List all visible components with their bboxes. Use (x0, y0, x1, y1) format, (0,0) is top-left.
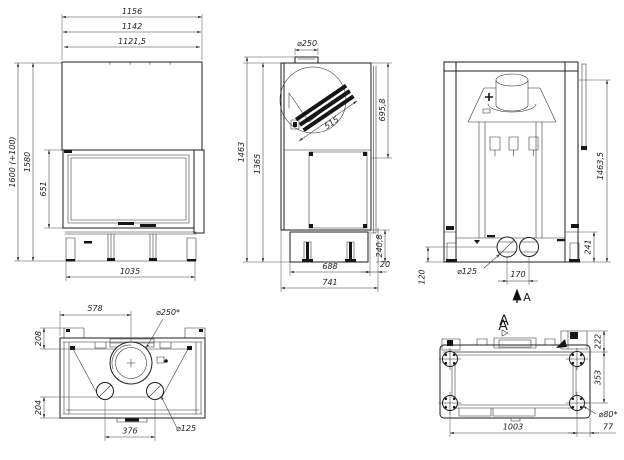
dim-side-base-height: 240,8 (375, 235, 384, 258)
side-panel (309, 152, 367, 228)
flue-opening (110, 342, 152, 384)
dim-side-base-depth: 688 (322, 262, 337, 271)
dim-side-hood-height: 695,8 (378, 99, 387, 122)
dim-front-base-width: 1035 (120, 267, 140, 276)
bottom-view-outline (440, 345, 590, 418)
front-detail-marks (64, 150, 196, 262)
adjustable-foot-bottom-left (439, 392, 461, 414)
dim-plan-flue-offset: 578 (87, 304, 102, 313)
front-base-structure (65, 232, 196, 261)
sensor-dot (164, 359, 168, 363)
flue-diameter-leader (146, 319, 163, 348)
dim-plan-intake-spacing: 376 (122, 427, 137, 436)
outlet-diameter-leader (484, 254, 500, 268)
front-view: 1156 1142 1121,5 1600 (+100) 1580 651 10… (8, 7, 204, 281)
adjustable-foot-top-left (439, 348, 461, 370)
front-door-frame (68, 62, 189, 223)
side-panel-corner-marks (309, 152, 367, 228)
plan-view: 578 ⌀250* 208 204 376 ⌀125 (34, 304, 205, 441)
dim-bottom-feet-spacing: 1003 (503, 423, 523, 432)
intake-diameter-leader (161, 396, 177, 428)
dim-bottom-feet-depth: 353 (594, 370, 603, 385)
dim-plan-intake-diameter: ⌀125 (176, 424, 196, 433)
dim-plan-front-depth: 204 (34, 400, 43, 415)
air-outlet-right (520, 238, 539, 257)
dim-rear-base-height: 241 (584, 239, 593, 254)
technical-drawing-sheet: 1156 1142 1121,5 1600 (+100) 1580 651 10… (0, 0, 624, 460)
dim-front-body-height: 1580 (23, 152, 32, 172)
dim-bottom-rear-offset: 222 (594, 334, 603, 349)
dim-bottom-foot-diameter: ⌀80* (599, 410, 618, 419)
rear-convector-channels (457, 122, 565, 238)
side-view-outline (281, 57, 371, 262)
bolt-cross-mark (485, 93, 493, 101)
dim-side-flue-diameter: ⌀250 (297, 39, 317, 48)
dim-plan-rear-depth: 208 (34, 331, 43, 346)
side-base-feet (302, 242, 356, 262)
rear-detail-marks (446, 146, 587, 244)
flue-collar-top (496, 74, 528, 86)
dim-front-overall-height: 1600 (+100) (8, 136, 17, 187)
rear-view: 1463,5 241 120 ⌀125 170 A A (418, 62, 612, 329)
bottom-view: A 222 353 ⌀80* 1003 77 (439, 318, 618, 437)
fireplace-drawing: 1156 1142 1121,5 1600 (+100) 1580 651 10… (0, 0, 624, 460)
front-view-outline (62, 62, 204, 233)
bottom-view-label: A (498, 318, 508, 334)
outlet-circle-right (520, 238, 539, 257)
side-extension-lines (243, 48, 392, 292)
rear-feet-pads (446, 259, 580, 262)
dim-side-body-height: 1365 (253, 154, 262, 174)
bottom-extension-lines (450, 331, 616, 437)
bottom-inner-frame (452, 352, 576, 421)
side-view: ⌀250 515 695,8 1463 1365 240,8 688 20 74… (237, 39, 392, 292)
dim-front-door-height: 651 (39, 181, 48, 196)
flue-collar (488, 74, 536, 112)
dim-front-overall-width: 1156 (122, 7, 142, 16)
plan-sensor (157, 357, 164, 363)
dim-rear-outlet-height: 120 (418, 269, 427, 284)
dim-plan-flue-diameter: ⌀250* (156, 308, 180, 317)
dim-rear-outlet-spacing: 170 (510, 270, 525, 279)
dim-front-inner-width: 1121,5 (118, 37, 146, 46)
dim-side-overall-depth: 741 (322, 278, 337, 287)
dim-rear-overall-height: 1463,5 (596, 152, 605, 180)
dim-bottom-foot-edge: 77 (603, 423, 614, 432)
adjustable-foot-top-right (566, 348, 588, 370)
dim-rear-outlet-diameter: ⌀125 (457, 267, 477, 276)
dim-front-body-width: 1142 (122, 22, 142, 31)
dim-side-overall-height: 1463 (237, 142, 246, 162)
side-base-legs (304, 242, 354, 261)
dim-side-rear-offset: 20 (380, 260, 390, 269)
section-arrow-label: A (523, 291, 531, 304)
